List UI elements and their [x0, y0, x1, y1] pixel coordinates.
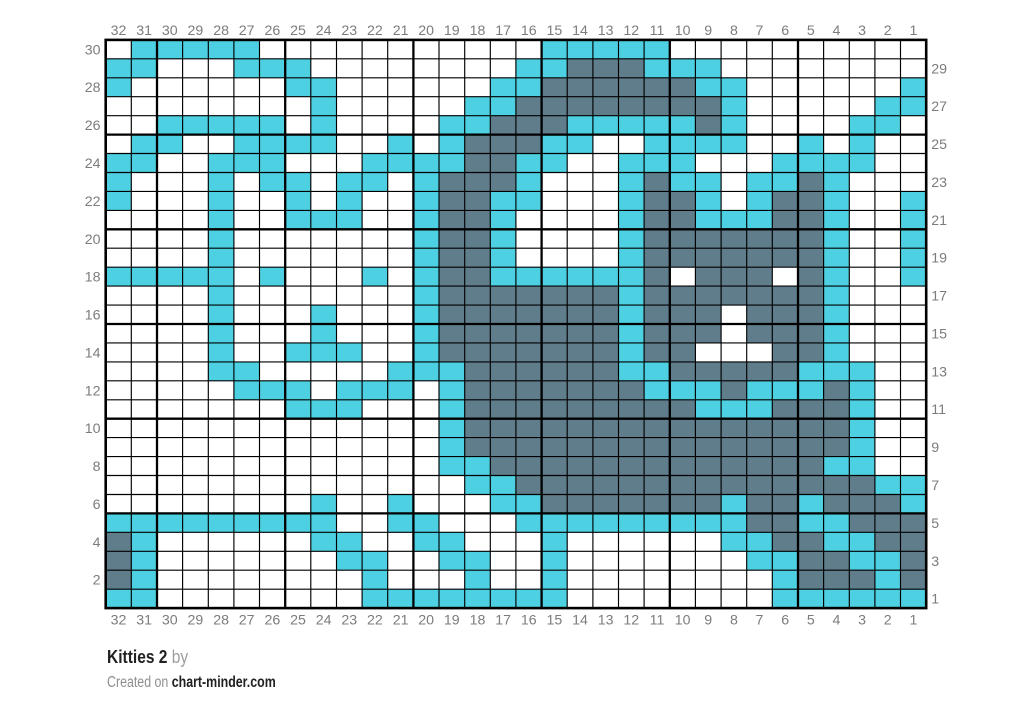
svg-text:27: 27	[239, 613, 255, 629]
svg-text:12: 12	[623, 23, 639, 39]
svg-text:8: 8	[730, 23, 738, 39]
svg-text:16: 16	[521, 23, 537, 39]
svg-text:10: 10	[675, 23, 691, 39]
svg-text:5: 5	[807, 23, 815, 39]
svg-text:19: 19	[931, 251, 947, 267]
svg-text:25: 25	[290, 23, 306, 39]
svg-text:21: 21	[393, 613, 409, 629]
svg-text:28: 28	[213, 613, 229, 629]
svg-text:14: 14	[572, 613, 588, 629]
svg-text:10: 10	[85, 421, 101, 437]
svg-text:30: 30	[162, 23, 178, 39]
svg-text:6: 6	[781, 23, 789, 39]
svg-text:3: 3	[858, 613, 866, 629]
svg-text:22: 22	[367, 613, 383, 629]
svg-text:7: 7	[931, 478, 939, 494]
svg-text:24: 24	[316, 613, 332, 629]
svg-text:11: 11	[931, 402, 946, 418]
svg-text:8: 8	[730, 613, 738, 629]
svg-text:1: 1	[931, 592, 939, 608]
svg-text:14: 14	[572, 23, 588, 39]
svg-text:18: 18	[470, 613, 486, 629]
svg-text:4: 4	[832, 23, 840, 39]
svg-text:26: 26	[265, 23, 281, 39]
svg-text:19: 19	[444, 23, 460, 39]
svg-text:13: 13	[598, 613, 614, 629]
svg-text:27: 27	[931, 99, 947, 115]
svg-text:11: 11	[650, 613, 665, 629]
svg-text:13: 13	[598, 23, 614, 39]
svg-text:17: 17	[495, 23, 511, 39]
svg-text:10: 10	[675, 613, 691, 629]
svg-text:13: 13	[931, 364, 947, 380]
svg-text:15: 15	[931, 327, 947, 343]
svg-text:27: 27	[239, 23, 255, 39]
svg-text:18: 18	[470, 23, 486, 39]
svg-text:6: 6	[781, 613, 789, 629]
svg-text:15: 15	[547, 23, 563, 39]
svg-text:3: 3	[858, 23, 866, 39]
svg-text:30: 30	[162, 613, 178, 629]
svg-text:4: 4	[93, 535, 101, 551]
svg-text:31: 31	[136, 613, 152, 629]
svg-text:22: 22	[85, 194, 101, 210]
svg-text:23: 23	[341, 23, 357, 39]
svg-text:29: 29	[188, 613, 204, 629]
svg-text:22: 22	[367, 23, 383, 39]
svg-text:1: 1	[909, 23, 917, 39]
svg-text:25: 25	[931, 137, 947, 153]
svg-text:25: 25	[290, 613, 306, 629]
svg-text:23: 23	[931, 175, 947, 191]
svg-text:20: 20	[85, 232, 101, 248]
svg-text:31: 31	[136, 23, 152, 39]
svg-text:29: 29	[188, 23, 204, 39]
svg-text:6: 6	[93, 497, 101, 513]
svg-text:20: 20	[418, 613, 434, 629]
svg-text:5: 5	[931, 516, 939, 532]
svg-text:12: 12	[623, 613, 639, 629]
svg-text:32: 32	[111, 613, 127, 629]
svg-text:2: 2	[93, 573, 101, 589]
svg-text:9: 9	[704, 23, 712, 39]
svg-text:9: 9	[931, 440, 939, 456]
svg-text:21: 21	[931, 213, 947, 229]
svg-text:16: 16	[521, 613, 537, 629]
svg-text:8: 8	[93, 459, 101, 475]
svg-text:1: 1	[909, 613, 917, 629]
svg-text:5: 5	[807, 613, 815, 629]
svg-text:9: 9	[704, 613, 712, 629]
svg-text:11: 11	[650, 23, 665, 39]
svg-text:18: 18	[85, 270, 101, 286]
svg-text:12: 12	[85, 383, 101, 399]
svg-text:21: 21	[393, 23, 409, 39]
svg-text:20: 20	[418, 23, 434, 39]
svg-text:2: 2	[884, 23, 892, 39]
svg-text:30: 30	[85, 42, 101, 58]
svg-text:3: 3	[931, 554, 939, 570]
svg-text:29: 29	[931, 61, 947, 77]
svg-text:24: 24	[316, 23, 332, 39]
svg-text:4: 4	[832, 613, 840, 629]
svg-text:15: 15	[547, 613, 563, 629]
svg-text:17: 17	[931, 289, 947, 305]
svg-text:24: 24	[85, 156, 101, 172]
svg-text:28: 28	[213, 23, 229, 39]
svg-text:28: 28	[85, 80, 101, 96]
svg-text:32: 32	[111, 23, 127, 39]
svg-text:17: 17	[495, 613, 511, 629]
svg-text:7: 7	[756, 613, 764, 629]
svg-text:7: 7	[756, 23, 764, 39]
svg-text:26: 26	[85, 118, 101, 134]
svg-text:16: 16	[85, 308, 101, 324]
svg-text:19: 19	[444, 613, 460, 629]
svg-text:26: 26	[265, 613, 281, 629]
svg-text:14: 14	[85, 345, 101, 361]
svg-text:2: 2	[884, 613, 892, 629]
svg-text:23: 23	[341, 613, 357, 629]
